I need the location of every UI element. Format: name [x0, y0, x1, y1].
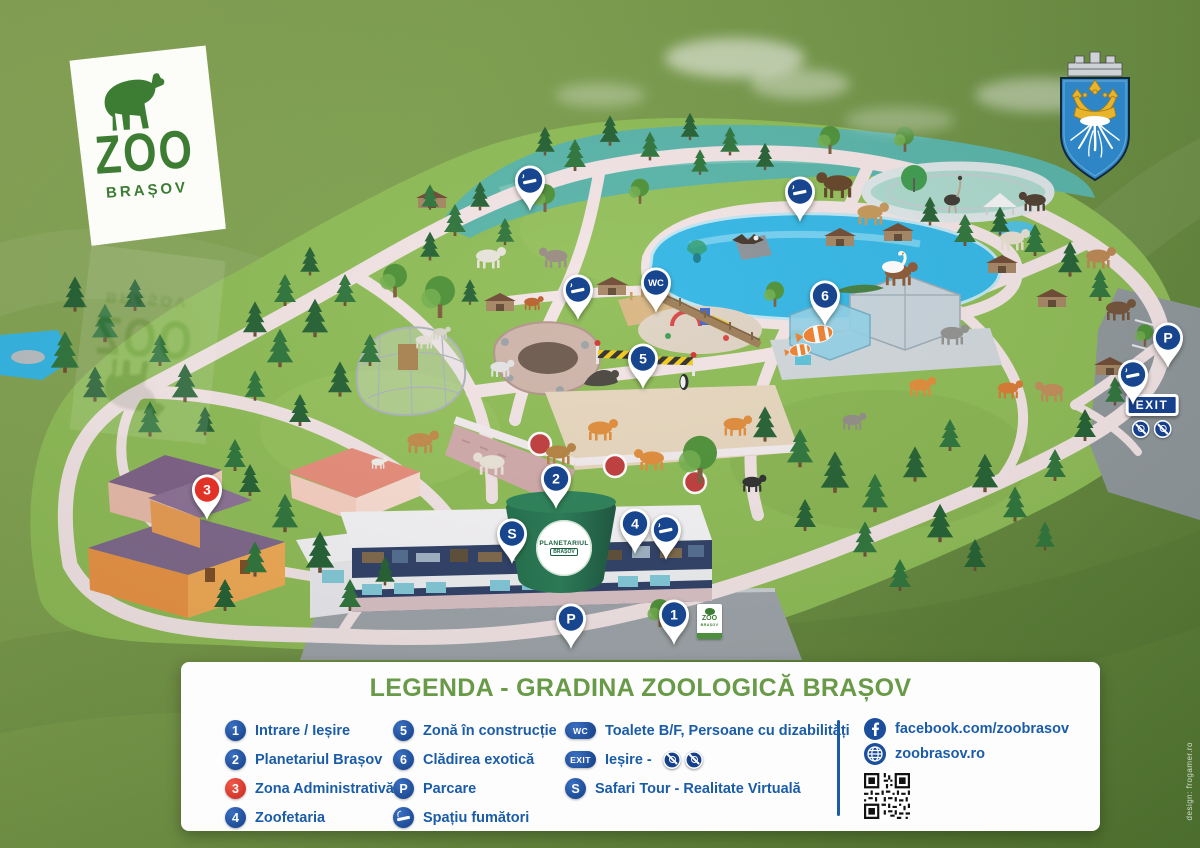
legend-item: 6Clădirea exotică	[393, 745, 565, 774]
pin-6-cladirea-exotica[interactable]: 6	[807, 279, 843, 327]
legend-item-label: Safari Tour - Realitate Virtuală	[595, 781, 801, 797]
svg-text:S: S	[507, 526, 516, 542]
pin-5-zona-constructie[interactable]: 5	[625, 342, 661, 390]
badge-1: 1	[225, 720, 246, 741]
badge-5: 5	[393, 720, 414, 741]
pin-smoking-area-3[interactable]	[560, 273, 596, 321]
legend-item-label: Clădirea exotică	[423, 752, 534, 768]
no-wheelchair-icon	[663, 751, 681, 769]
pin-smoking-area-2[interactable]	[782, 175, 818, 223]
pin-smoking-area-5[interactable]	[648, 513, 684, 561]
pin-1-intrare[interactable]: 1	[656, 598, 692, 646]
legend-panel: LEGENDA - GRADINA ZOOLOGICĂ BRAȘOV 1Intr…	[181, 662, 1100, 831]
pin-wc[interactable]: WC	[638, 266, 674, 314]
svg-text:5: 5	[639, 351, 647, 367]
badge-2: 2	[225, 749, 246, 770]
legend-item: Spațiu fumători	[393, 803, 565, 832]
pin-smoking-area-1[interactable]	[512, 164, 548, 212]
legend-item: 5Zonă în construcție	[393, 716, 565, 745]
pin-3-zona-administrativa[interactable]: 3	[189, 473, 225, 521]
legend-item: SSafari Tour - Realitate Virtuală	[565, 774, 833, 803]
qr-code	[864, 773, 910, 819]
pin-parking-north[interactable]: P	[1150, 321, 1186, 369]
legend-item-label: Intrare / Ieșire	[255, 723, 350, 739]
design-credit: design: frogamer.ro	[1185, 742, 1194, 820]
svg-text:P: P	[1163, 330, 1172, 346]
legend-item-label: Toalete B/F, Persoane cu dizabilități	[605, 723, 850, 739]
svg-text:1: 1	[670, 607, 678, 623]
pin-2-planetariul[interactable]: 2	[538, 462, 574, 510]
no-stroller-icon	[685, 751, 703, 769]
svg-text:P: P	[566, 611, 575, 627]
svg-text:6: 6	[821, 288, 829, 304]
badge-4: 4	[225, 807, 246, 828]
badge-exit: EXIT	[565, 751, 596, 768]
legend-item: 3Zona Administrativă	[225, 774, 393, 803]
legend-item-label: Zona Administrativă	[255, 781, 394, 797]
badge-3: 3	[225, 778, 246, 799]
badge-s: S	[565, 778, 586, 799]
badge-p: P	[393, 778, 414, 799]
legend-link-website[interactable]: zoobrasov.ro	[864, 741, 1069, 766]
svg-text:WC: WC	[648, 278, 664, 289]
badge-wc: WC	[565, 722, 596, 739]
legend-item-label: Zoofetaria	[255, 810, 325, 826]
legend-item-label: Spațiu fumători	[423, 810, 529, 826]
legend-item: EXITIeșire -	[565, 745, 833, 774]
zoo-brasov-map-poster: ZOO BRAȘOV ZOO BRAȘOV PLANETARIUL BRAȘOV…	[0, 0, 1200, 848]
svg-text:3: 3	[203, 482, 211, 498]
legend-item: 4Zoofetaria	[225, 803, 393, 832]
legend-divider	[837, 720, 840, 816]
pin-parking-south[interactable]: P	[553, 602, 589, 650]
pin-smoking-area-4[interactable]	[1115, 358, 1151, 406]
legend-item-label: Ieșire -	[605, 752, 652, 768]
legend-item-label: Parcare	[423, 781, 476, 797]
facebook-icon	[864, 718, 886, 740]
legend-item-label: Planetariul Brașov	[255, 752, 382, 768]
legend-item-label: Zonă în construcție	[423, 723, 557, 739]
legend-item: PParcare	[393, 774, 565, 803]
legend-item: WCToalete B/F, Persoane cu dizabilități	[565, 716, 833, 745]
pin-safari-tour[interactable]: S	[494, 517, 530, 565]
legend-item: 2Planetariul Brașov	[225, 745, 393, 774]
svg-text:4: 4	[631, 516, 639, 532]
badge-6: 6	[393, 749, 414, 770]
smoking-icon	[393, 807, 414, 828]
legend-title: LEGENDA - GRADINA ZOOLOGICĂ BRAȘOV	[181, 662, 1100, 703]
legend-item: 1Intrare / Ieșire	[225, 716, 393, 745]
legend-link-facebook[interactable]: facebook.com/zoobrasov	[864, 716, 1069, 741]
globe-icon	[864, 743, 886, 765]
svg-text:2: 2	[552, 471, 560, 487]
